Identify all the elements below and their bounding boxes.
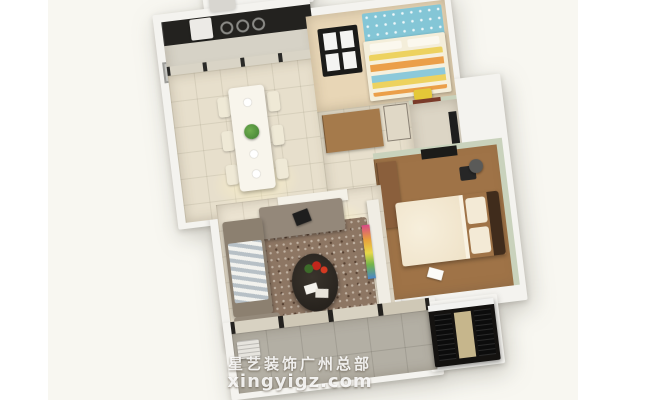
dining-chair — [271, 124, 285, 145]
throw-blanket — [228, 240, 269, 304]
kids-pillow — [407, 36, 440, 48]
floorplan-scene — [104, 0, 576, 400]
master-bed — [395, 191, 506, 267]
bed-blanket — [395, 195, 466, 266]
red-flowers — [320, 266, 328, 274]
cube-panel-left — [434, 313, 456, 361]
wall-tv-panel — [448, 111, 460, 146]
dining-chair — [275, 158, 289, 179]
watermark-line2: xingyigz.com — [185, 372, 415, 391]
window-pane — [323, 32, 338, 50]
cube-panel-middle — [454, 311, 476, 359]
window-pane — [325, 53, 340, 71]
kids-bed-cover — [369, 46, 448, 97]
flower-leaves — [304, 264, 314, 274]
watermark: 星艺装饰广州总部 xingyigz.com — [185, 356, 415, 391]
window-pane — [340, 30, 355, 48]
master-bedroom — [373, 138, 520, 301]
watermark-line1: 星艺装饰广州总部 — [185, 356, 415, 372]
kids-bed — [363, 32, 452, 102]
cube-panel-right — [474, 308, 496, 356]
hall-door — [383, 103, 411, 142]
wardrobe-cube — [428, 298, 501, 368]
fridge — [189, 17, 213, 41]
bed-pillow — [469, 226, 492, 254]
floor-paper — [427, 267, 444, 281]
vanity-mirror — [468, 158, 484, 174]
window-pane — [342, 51, 357, 69]
kids-window — [317, 25, 363, 78]
hall-wardrobe — [322, 108, 384, 153]
render-canvas: 星艺装饰广州总部 xingyigz.com — [0, 0, 650, 400]
magazine — [315, 289, 328, 298]
laptop — [292, 208, 312, 226]
bed-pillow — [465, 196, 488, 224]
dining-chair — [266, 91, 280, 112]
kids-pillow — [369, 40, 402, 52]
kids-bedroom — [306, 0, 457, 112]
